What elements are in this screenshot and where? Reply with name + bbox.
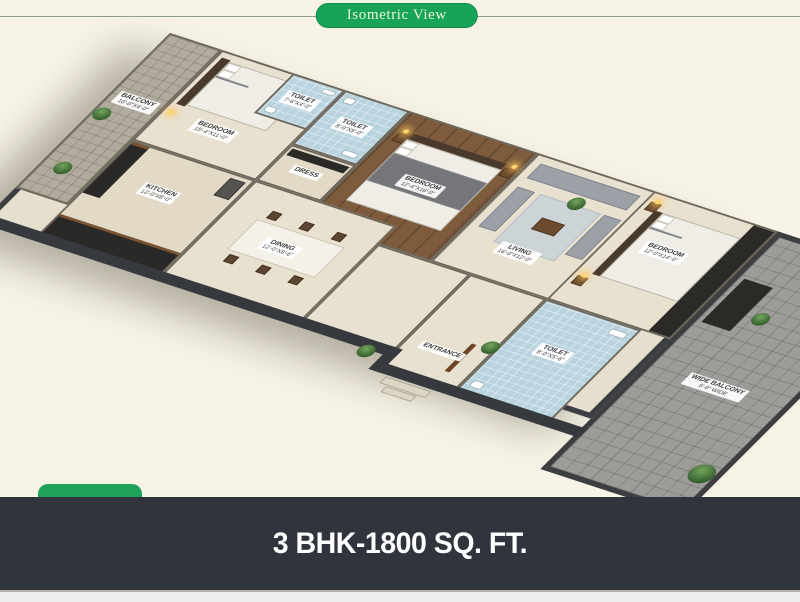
blanket <box>649 227 682 239</box>
lamp-icon <box>167 110 175 115</box>
plan-title: 3 BHK-1800 SQ. FT. <box>273 527 527 561</box>
toilet-fixture <box>468 380 486 390</box>
chair <box>255 265 272 275</box>
badge-label: Isometric View <box>347 7 447 24</box>
sink-fixture <box>320 88 338 97</box>
chair <box>331 232 348 242</box>
page: Isometric View <box>0 0 800 602</box>
sink-fixture <box>606 328 629 339</box>
isometric-view-badge: Isometric View <box>316 3 478 28</box>
toilet-fixture <box>262 105 278 114</box>
chair <box>223 254 240 264</box>
footer-bar: 3 BHK-1800 SQ. FT. <box>0 497 800 590</box>
blanket <box>215 76 249 88</box>
sink-fixture <box>340 149 360 159</box>
bottom-strip <box>0 590 800 602</box>
toilet-fixture <box>341 97 357 106</box>
chair <box>298 221 315 231</box>
chair <box>266 211 283 221</box>
chair <box>287 275 304 285</box>
